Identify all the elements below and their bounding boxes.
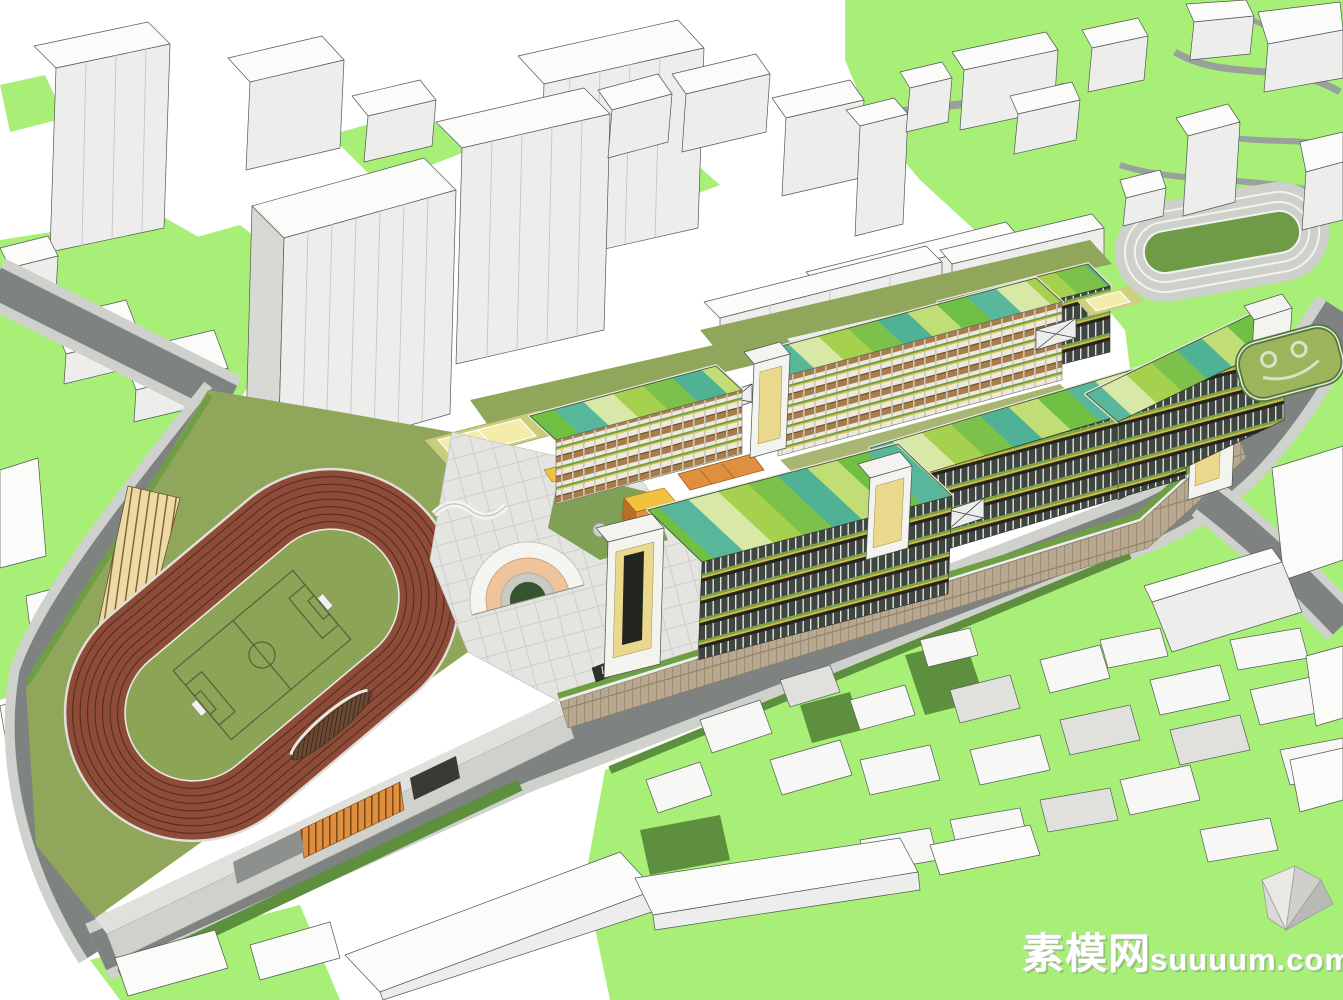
watermark-en: suuuum.com [1150,942,1343,977]
city-model-scene: 素模网 素模网 suuuum.com suuuum.com [0,0,1343,1000]
watermark-cn: 素模网 [1022,930,1151,977]
render-canvas: 素模网 素模网 suuuum.com suuuum.com [0,0,1343,1000]
